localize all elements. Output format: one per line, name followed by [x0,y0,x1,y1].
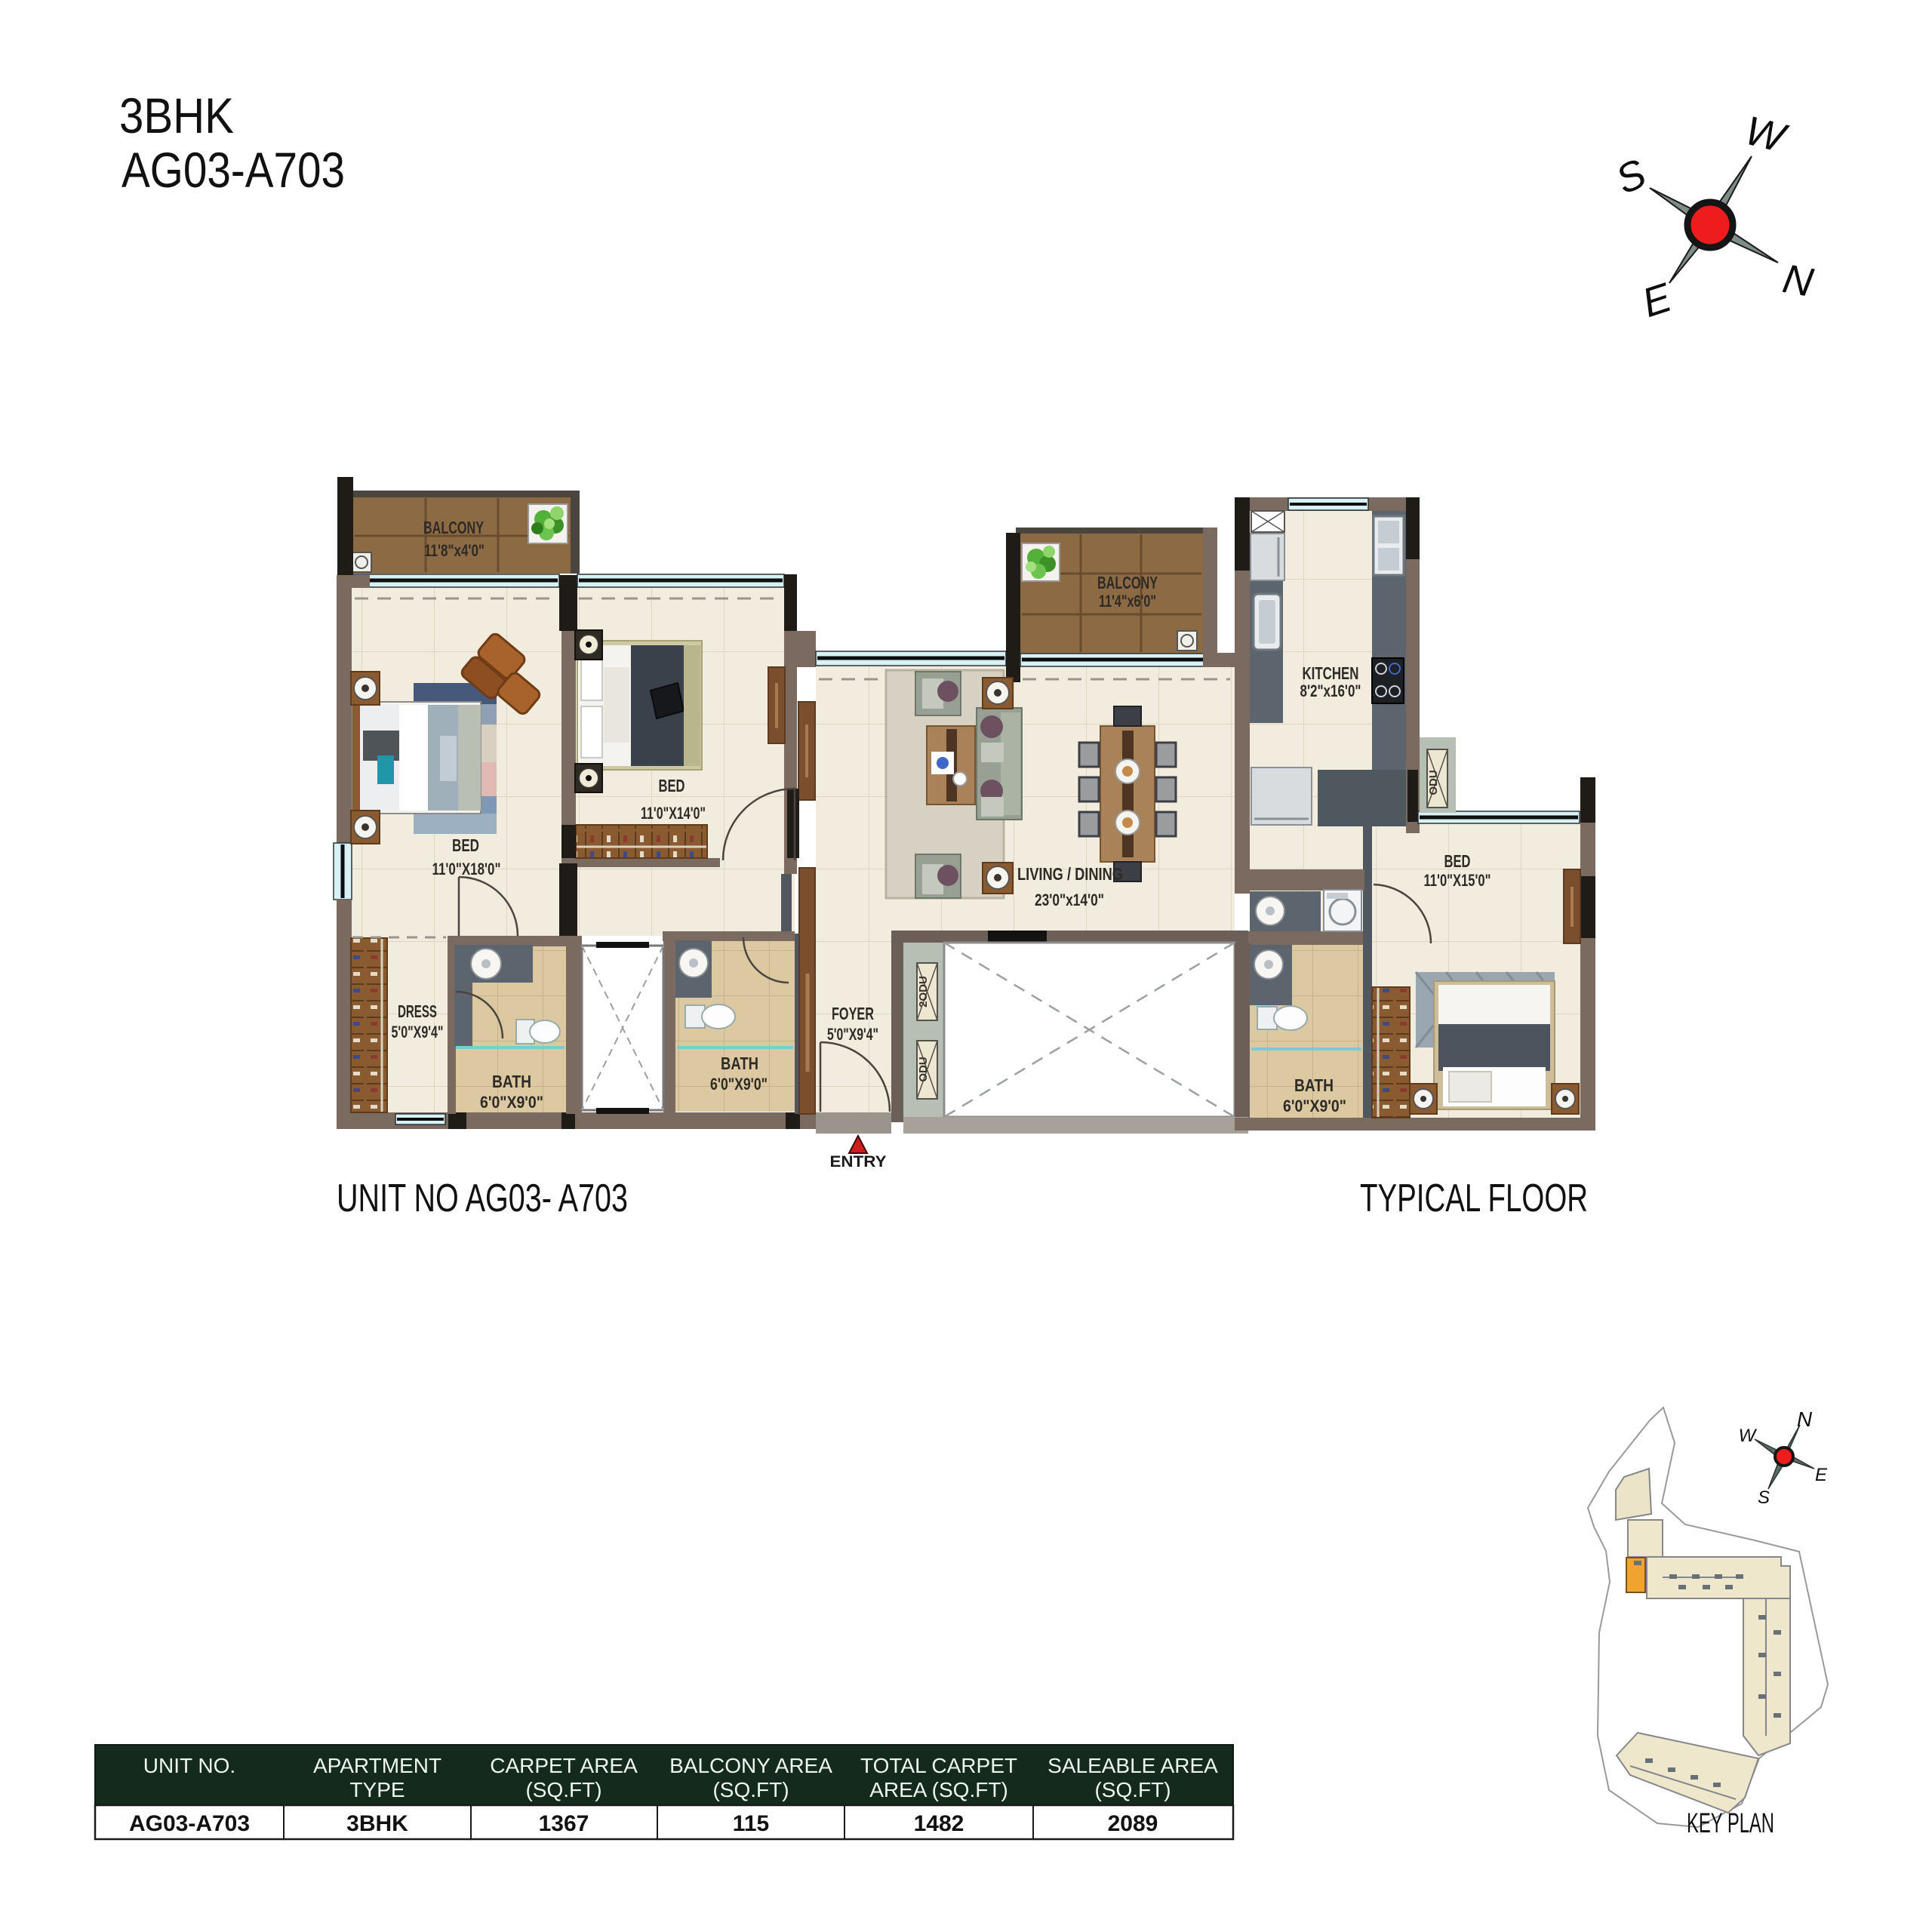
svg-text:BATH: BATH [721,1054,758,1073]
svg-text:6'0"X9'0": 6'0"X9'0" [480,1093,543,1112]
svg-text:BATH: BATH [1294,1075,1334,1095]
svg-text:APARTMENT: APARTMENT [313,1754,441,1777]
svg-text:TYPE: TYPE [349,1778,405,1801]
svg-text:BED: BED [659,776,685,795]
svg-text:KITCHEN: KITCHEN [1303,663,1359,683]
svg-text:3BHK: 3BHK [119,88,234,143]
svg-text:6'0"X9'0": 6'0"X9'0" [710,1075,768,1094]
svg-text:BALCONY AREA: BALCONY AREA [669,1754,832,1777]
svg-text:(SQ.FT): (SQ.FT) [1094,1778,1171,1801]
svg-text:115: 115 [733,1811,769,1836]
svg-text:DRESS: DRESS [398,1001,437,1021]
svg-text:(SQ.FT): (SQ.FT) [525,1778,601,1801]
svg-text:11'8"x4'0": 11'8"x4'0" [424,541,485,560]
svg-text:3BHK: 3BHK [346,1811,408,1836]
svg-text:23'0"x14'0": 23'0"x14'0" [1035,891,1104,909]
svg-text:11'0"X15'0": 11'0"X15'0" [1424,871,1491,890]
svg-text:2ODU: 2ODU [917,976,930,1008]
svg-text:SALEABLE AREA: SALEABLE AREA [1048,1754,1218,1777]
svg-text:AREA (SQ.FT): AREA (SQ.FT) [869,1778,1008,1801]
svg-text:1367: 1367 [539,1811,589,1836]
svg-text:W: W [1739,1426,1758,1446]
svg-text:ENTRY: ENTRY [830,1153,887,1171]
svg-text:ODU: ODU [1427,770,1440,795]
svg-text:6'0"X9'0": 6'0"X9'0" [1283,1097,1346,1115]
svg-text:BATH: BATH [492,1072,531,1091]
svg-text:AG03-A703: AG03-A703 [129,1811,250,1836]
svg-text:TOTAL CARPET: TOTAL CARPET [860,1754,1017,1777]
svg-text:FOYER: FOYER [832,1004,874,1023]
svg-text:N: N [1797,1407,1813,1431]
svg-text:UNIT NO.: UNIT NO. [143,1754,235,1777]
svg-text:11'4"x6'0": 11'4"x6'0" [1099,592,1156,611]
svg-text:11'0"X14'0": 11'0"X14'0" [641,804,706,823]
svg-text:KEY PLAN: KEY PLAN [1687,1807,1774,1838]
svg-text:ODU: ODU [917,1057,930,1081]
svg-text:AG03-A703: AG03-A703 [122,142,345,198]
svg-text:5'0"X9'4": 5'0"X9'4" [392,1023,444,1041]
svg-text:5'0"X9'4": 5'0"X9'4" [827,1025,878,1044]
svg-text:BALCONY: BALCONY [1097,573,1158,592]
svg-text:BALCONY: BALCONY [423,518,484,537]
svg-text:2089: 2089 [1108,1811,1158,1836]
svg-text:8'2"x16'0": 8'2"x16'0" [1300,681,1361,700]
svg-text:TYPICAL FLOOR: TYPICAL FLOOR [1360,1177,1588,1220]
svg-text:11'0"X18'0": 11'0"X18'0" [432,860,501,878]
svg-text:S: S [1758,1487,1770,1508]
svg-text:CARPET AREA: CARPET AREA [490,1754,638,1777]
svg-text:1482: 1482 [914,1811,964,1836]
svg-text:E: E [1815,1465,1828,1485]
svg-text:BED: BED [1444,851,1471,871]
svg-text:UNIT NO AG03- A703: UNIT NO AG03- A703 [337,1177,628,1220]
svg-text:(SQ.FT): (SQ.FT) [712,1778,789,1801]
svg-text:LIVING / DINING: LIVING / DINING [1017,864,1123,884]
svg-text:BED: BED [452,835,479,855]
